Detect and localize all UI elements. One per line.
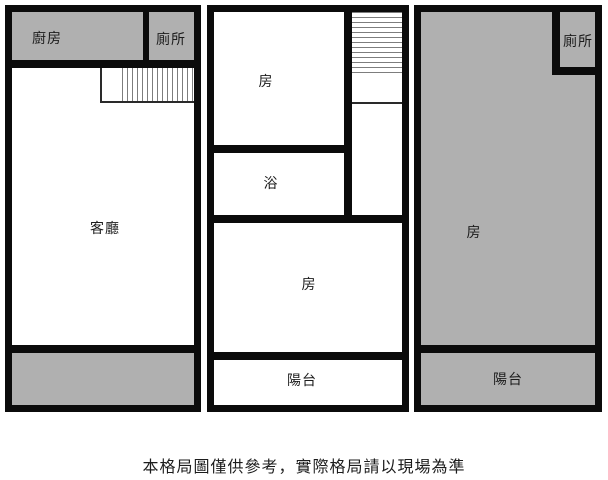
room-top-label: 房: [259, 74, 274, 88]
wall-above-balcony-middle: [214, 352, 402, 360]
wall-below-kitchen: [12, 60, 194, 68]
toilet-label-left: 廁所: [156, 32, 186, 46]
disclaimer-text: 本格局圖僅供參考，實際格局請以現場為準: [0, 453, 608, 477]
balcony-label-middle: 陽台: [287, 373, 317, 387]
wall-above-balcony-left: [12, 345, 194, 353]
staircase-middle-unit: [352, 12, 402, 215]
floor-plan-right-unit: 廁所 房 陽台: [414, 5, 602, 412]
living-room-label: 客廳: [90, 221, 120, 235]
floor-plan-left-unit: 廚房 廁所 客廳: [5, 5, 201, 412]
balcony-left: [12, 353, 194, 405]
stair-steps-hatch: [352, 12, 402, 73]
kitchen-label: 廚房: [32, 31, 62, 45]
toilet-wall-horizontal: [552, 67, 595, 75]
floor-plan-image: 廚房 廁所 客廳 房 浴 房 陽台 廁所 房 陽台 本格局圖僅供參考，實際格局請…: [0, 0, 608, 480]
wall-below-top-room: [214, 145, 344, 153]
wall-room-stair-divider: [344, 12, 352, 223]
staircase-left-unit: [100, 68, 194, 103]
stair-steps-hatch: [122, 68, 194, 101]
floor-plan-middle-unit: 房 浴 房 陽台: [207, 5, 409, 412]
balcony-label-right: 陽台: [493, 372, 523, 386]
toilet-wall-vertical: [552, 12, 560, 75]
wall-below-bath: [214, 215, 402, 223]
room-right-label: 房: [467, 225, 482, 239]
room-bottom-label: 房: [302, 277, 317, 291]
toilet-label-right: 廁所: [563, 34, 593, 48]
stair-landing-line: [352, 102, 402, 104]
bath-label: 浴: [264, 176, 279, 190]
wall-above-balcony-right: [421, 345, 595, 353]
